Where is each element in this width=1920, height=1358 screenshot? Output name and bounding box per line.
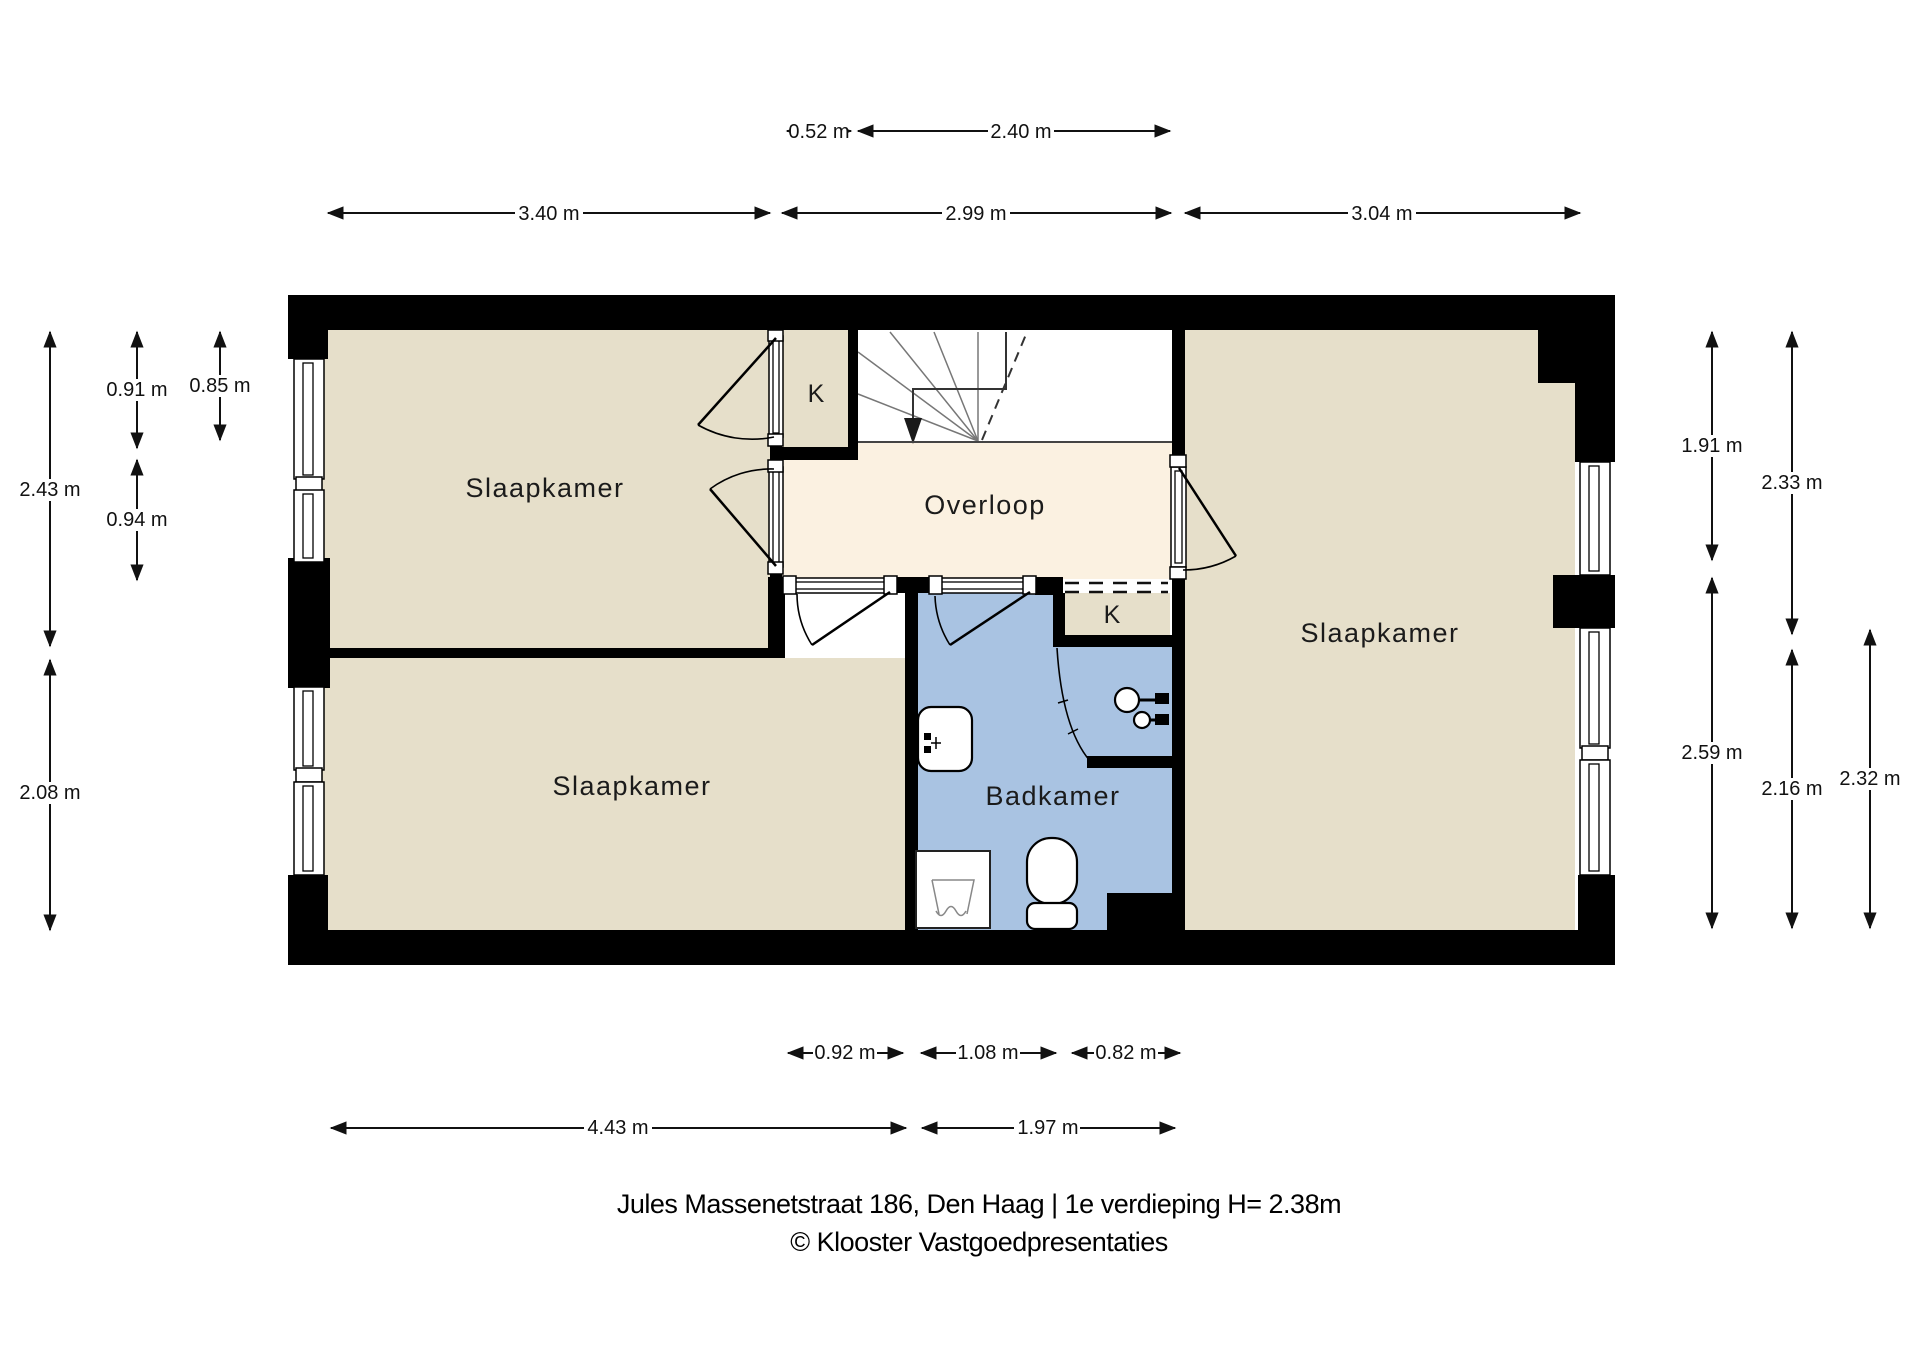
dim-label: 1.97 m: [1017, 1117, 1078, 1139]
copyright: © Klooster Vastgoedpresentaties: [790, 1227, 1168, 1257]
dim-label: 0.92 m: [814, 1042, 875, 1064]
dim-label: 3.04 m: [1351, 203, 1412, 225]
wall-block-bathroom-corner: [1107, 893, 1182, 932]
door-jamb: [768, 460, 783, 472]
window-mullion: [296, 768, 322, 782]
wall-left-pier-bottom: [288, 875, 328, 965]
window-mullion: [296, 477, 322, 491]
faucet-icon: [924, 746, 931, 753]
dim-label: 0.52 m: [788, 121, 849, 143]
shower-head-icon: [1115, 688, 1139, 712]
dim-label: 2.43 m: [19, 479, 80, 501]
toilet-bowl: [1027, 838, 1077, 904]
dimensions-left: 2.43 m 0.91 m 0.85 m 0.94 m 2.08 m: [18, 332, 252, 930]
door-jamb: [1170, 455, 1186, 467]
wall-exterior-bottom: [290, 930, 1615, 965]
wall-right-bottom: [1578, 875, 1615, 965]
wall-closet-top-bottom: [782, 447, 858, 460]
toilet: [1027, 838, 1077, 929]
dimensions-top: 0.52 m 2.40 m 3.40 m 2.99 m 3.04 m: [328, 120, 1580, 225]
shower-knob-icon: [1134, 712, 1150, 728]
page-title: Jules Massenetstraat 186, Den Haag | 1e …: [617, 1189, 1341, 1219]
label-bedroom-top-left: Slaapkamer: [465, 473, 624, 503]
wall-shower-stub: [1087, 756, 1172, 768]
door-jamb: [768, 434, 783, 446]
dim-label: 1.91 m: [1681, 435, 1742, 457]
dim-label: 2.59 m: [1681, 742, 1742, 764]
wall-pier-landing-bottom: [895, 577, 932, 593]
label-bedroom-right: Slaapkamer: [1300, 618, 1459, 648]
door-swing-arc: [797, 594, 812, 645]
label-bedroom-bottom-left: Slaapkamer: [552, 771, 711, 801]
label-landing: Overloop: [924, 490, 1046, 520]
door-jamb: [929, 576, 942, 594]
door-opening-inner: [789, 582, 891, 589]
wall-between-left-bedrooms: [290, 648, 785, 658]
label-closet-top: K: [808, 380, 825, 408]
window-glass: [1589, 632, 1599, 744]
wall-right-pier: [1553, 575, 1615, 628]
dim-label: 2.40 m: [990, 121, 1051, 143]
door-opening-inner: [1175, 471, 1182, 563]
label-closet-bathroom: K: [1104, 601, 1121, 629]
window-glass: [1589, 764, 1599, 871]
faucet-icon: [924, 733, 931, 740]
door-jamb: [884, 576, 897, 594]
wall-right-top-step: [1538, 295, 1615, 383]
window-glass: [303, 691, 313, 766]
wall-left-pier-top: [288, 295, 328, 359]
dim-label: 4.43 m: [587, 1117, 648, 1139]
dim-label: 0.94 m: [106, 509, 167, 531]
window-glass: [303, 363, 313, 475]
wall-exterior-top: [290, 295, 1615, 330]
dim-label: 0.91 m: [106, 379, 167, 401]
door-jamb: [783, 576, 796, 594]
wall-closet-top-right: [848, 330, 858, 447]
dimensions-bottom: 0.92 m 1.08 m 0.82 m 4.43 m 1.97 m: [331, 1042, 1180, 1139]
dim-label: 2.33 m: [1761, 472, 1822, 494]
door-leaf: [812, 592, 890, 645]
wall-right-bedroom-upper: [1172, 330, 1185, 462]
shower-mount: [1155, 714, 1169, 725]
dim-label: 0.82 m: [1095, 1042, 1156, 1064]
wall-right-upper: [1575, 383, 1615, 462]
door-opening-inner: [773, 340, 779, 433]
dim-label: 2.16 m: [1761, 778, 1822, 800]
dim-label: 1.08 m: [957, 1042, 1018, 1064]
door-bedroom-bottom-left: [783, 576, 897, 645]
wall-left-pier-middle: [288, 558, 330, 688]
floor-plan-drawing: Slaapkamer Slaapkamer Slaapkamer Overloo…: [0, 0, 1920, 1358]
wall-chunk-bath-door: [1035, 577, 1063, 595]
window-mullion: [1582, 746, 1608, 760]
window-glass: [303, 494, 313, 558]
washing-machine-body: [916, 851, 990, 928]
dim-label: 3.40 m: [518, 203, 579, 225]
sink: [918, 707, 972, 771]
door-jamb: [1170, 567, 1186, 579]
dimensions-right: 1.91 m 2.33 m 2.59 m 2.16 m 2.32 m: [1680, 332, 1902, 928]
door-opening-inner: [936, 582, 1031, 589]
toilet-tank: [1027, 903, 1077, 929]
title-block: Jules Massenetstraat 186, Den Haag | 1e …: [617, 1189, 1341, 1257]
wall-right-bedroom-lower: [1172, 572, 1185, 932]
window-glass: [303, 786, 313, 871]
washing-machine: [916, 851, 990, 928]
door-opening-inner: [773, 471, 779, 563]
floor-plan-page: Slaapkamer Slaapkamer Slaapkamer Overloo…: [0, 0, 1920, 1358]
window-glass: [1589, 466, 1599, 571]
shower-mount: [1155, 693, 1169, 704]
wall-closet-bathroom-bottom: [1053, 635, 1172, 647]
dim-label: 0.85 m: [189, 375, 250, 397]
dim-label: 2.08 m: [19, 782, 80, 804]
label-bathroom: Badkamer: [985, 781, 1120, 811]
dim-label: 2.99 m: [945, 203, 1006, 225]
dim-label: 2.32 m: [1839, 768, 1900, 790]
